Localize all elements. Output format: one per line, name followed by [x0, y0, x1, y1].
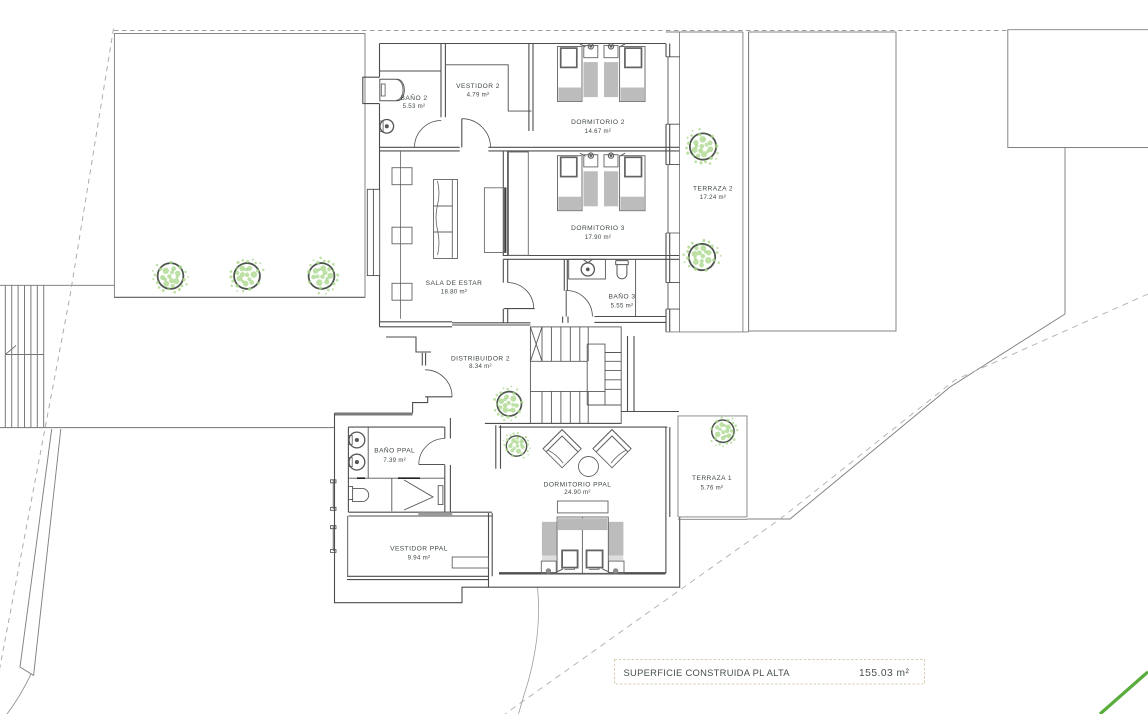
- svg-text:7.39 m²: 7.39 m²: [383, 457, 406, 464]
- svg-text:TERRAZA 1: TERRAZA 1: [692, 475, 732, 482]
- svg-text:BAÑO 2: BAÑO 2: [401, 93, 428, 102]
- svg-text:DORMITORIO 2: DORMITORIO 2: [571, 119, 625, 126]
- svg-text:155.03 m²: 155.03 m²: [859, 668, 909, 679]
- svg-text:SUPERFICIE CONSTRUIDA PL ALTA: SUPERFICIE CONSTRUIDA PL ALTA: [624, 667, 791, 678]
- svg-text:18.80 m²: 18.80 m²: [441, 288, 467, 295]
- svg-text:5.53 m²: 5.53 m²: [403, 103, 426, 110]
- svg-text:VESTIDOR 2: VESTIDOR 2: [456, 83, 500, 90]
- svg-text:4.79 m²: 4.79 m²: [467, 91, 490, 98]
- svg-text:DORMITORIO 3: DORMITORIO 3: [571, 225, 625, 232]
- svg-text:BAÑO PPAL: BAÑO PPAL: [374, 445, 415, 454]
- svg-text:VESTIDOR PPAL: VESTIDOR PPAL: [390, 545, 448, 552]
- svg-text:TERRAZA 2: TERRAZA 2: [693, 185, 733, 192]
- svg-text:24.90 m²: 24.90 m²: [564, 489, 590, 496]
- svg-text:5.76 m²: 5.76 m²: [701, 484, 724, 491]
- svg-text:17.90 m²: 17.90 m²: [585, 234, 611, 241]
- svg-text:17.24 m²: 17.24 m²: [700, 194, 726, 201]
- svg-text:DORMITORIO PPAL: DORMITORIO PPAL: [544, 481, 612, 488]
- svg-text:9.94 m²: 9.94 m²: [408, 554, 431, 561]
- svg-text:8.34 m²: 8.34 m²: [469, 363, 492, 370]
- svg-text:SALA DE ESTAR: SALA DE ESTAR: [426, 280, 483, 287]
- svg-text:DISTRIBUIDOR 2: DISTRIBUIDOR 2: [451, 355, 510, 362]
- svg-text:5.55 m²: 5.55 m²: [611, 303, 634, 310]
- svg-text:14.67 m²: 14.67 m²: [585, 128, 611, 135]
- svg-text:BAÑO 3: BAÑO 3: [609, 291, 636, 300]
